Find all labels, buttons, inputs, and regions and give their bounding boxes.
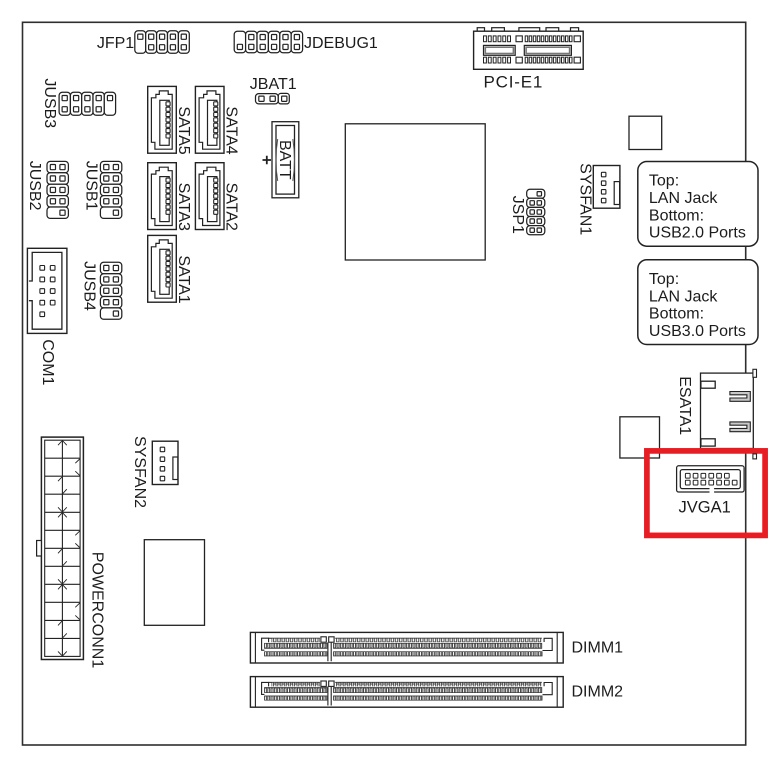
svg-text:LAN Jack: LAN Jack <box>649 190 718 207</box>
svg-text:JBAT1: JBAT1 <box>250 76 297 93</box>
svg-text:Bottom:: Bottom: <box>649 207 704 224</box>
svg-text:POWERCONN1: POWERCONN1 <box>88 552 105 669</box>
svg-text:JDEBUG1: JDEBUG1 <box>304 35 378 52</box>
svg-text:Top:: Top: <box>649 271 679 288</box>
svg-text:Top:: Top: <box>649 173 679 190</box>
svg-text:USB2.0 Ports: USB2.0 Ports <box>649 225 746 242</box>
svg-text:SATA5: SATA5 <box>175 106 192 154</box>
svg-text:JUSB1: JUSB1 <box>83 161 100 211</box>
svg-text:LAN Jack: LAN Jack <box>649 288 718 305</box>
svg-text:JUSB2: JUSB2 <box>26 161 43 211</box>
svg-text:JUSB4: JUSB4 <box>81 261 98 311</box>
svg-text:JSP1: JSP1 <box>509 196 526 234</box>
svg-text:USB3.0 Ports: USB3.0 Ports <box>649 323 746 340</box>
svg-text:DIMM1: DIMM1 <box>572 640 624 657</box>
svg-text:COM1: COM1 <box>39 339 56 385</box>
svg-text:JVGA1: JVGA1 <box>679 499 731 517</box>
svg-text:SATA2: SATA2 <box>223 183 240 231</box>
svg-text:SYSFAN2: SYSFAN2 <box>131 436 148 508</box>
svg-text:SATA1: SATA1 <box>175 255 192 303</box>
svg-text:SYSFAN1: SYSFAN1 <box>577 163 594 235</box>
svg-text:BATT: BATT <box>276 140 293 180</box>
svg-text:PCI-E1: PCI-E1 <box>484 72 544 91</box>
svg-text:SATA4: SATA4 <box>223 106 240 154</box>
svg-text:Bottom:: Bottom: <box>649 306 704 323</box>
svg-text:DIMM2: DIMM2 <box>572 684 624 701</box>
svg-text:JFP1: JFP1 <box>97 35 134 52</box>
svg-text:SATA3: SATA3 <box>175 183 192 231</box>
svg-text:ESATA1: ESATA1 <box>676 376 693 435</box>
svg-text:JUSB3: JUSB3 <box>41 78 58 128</box>
